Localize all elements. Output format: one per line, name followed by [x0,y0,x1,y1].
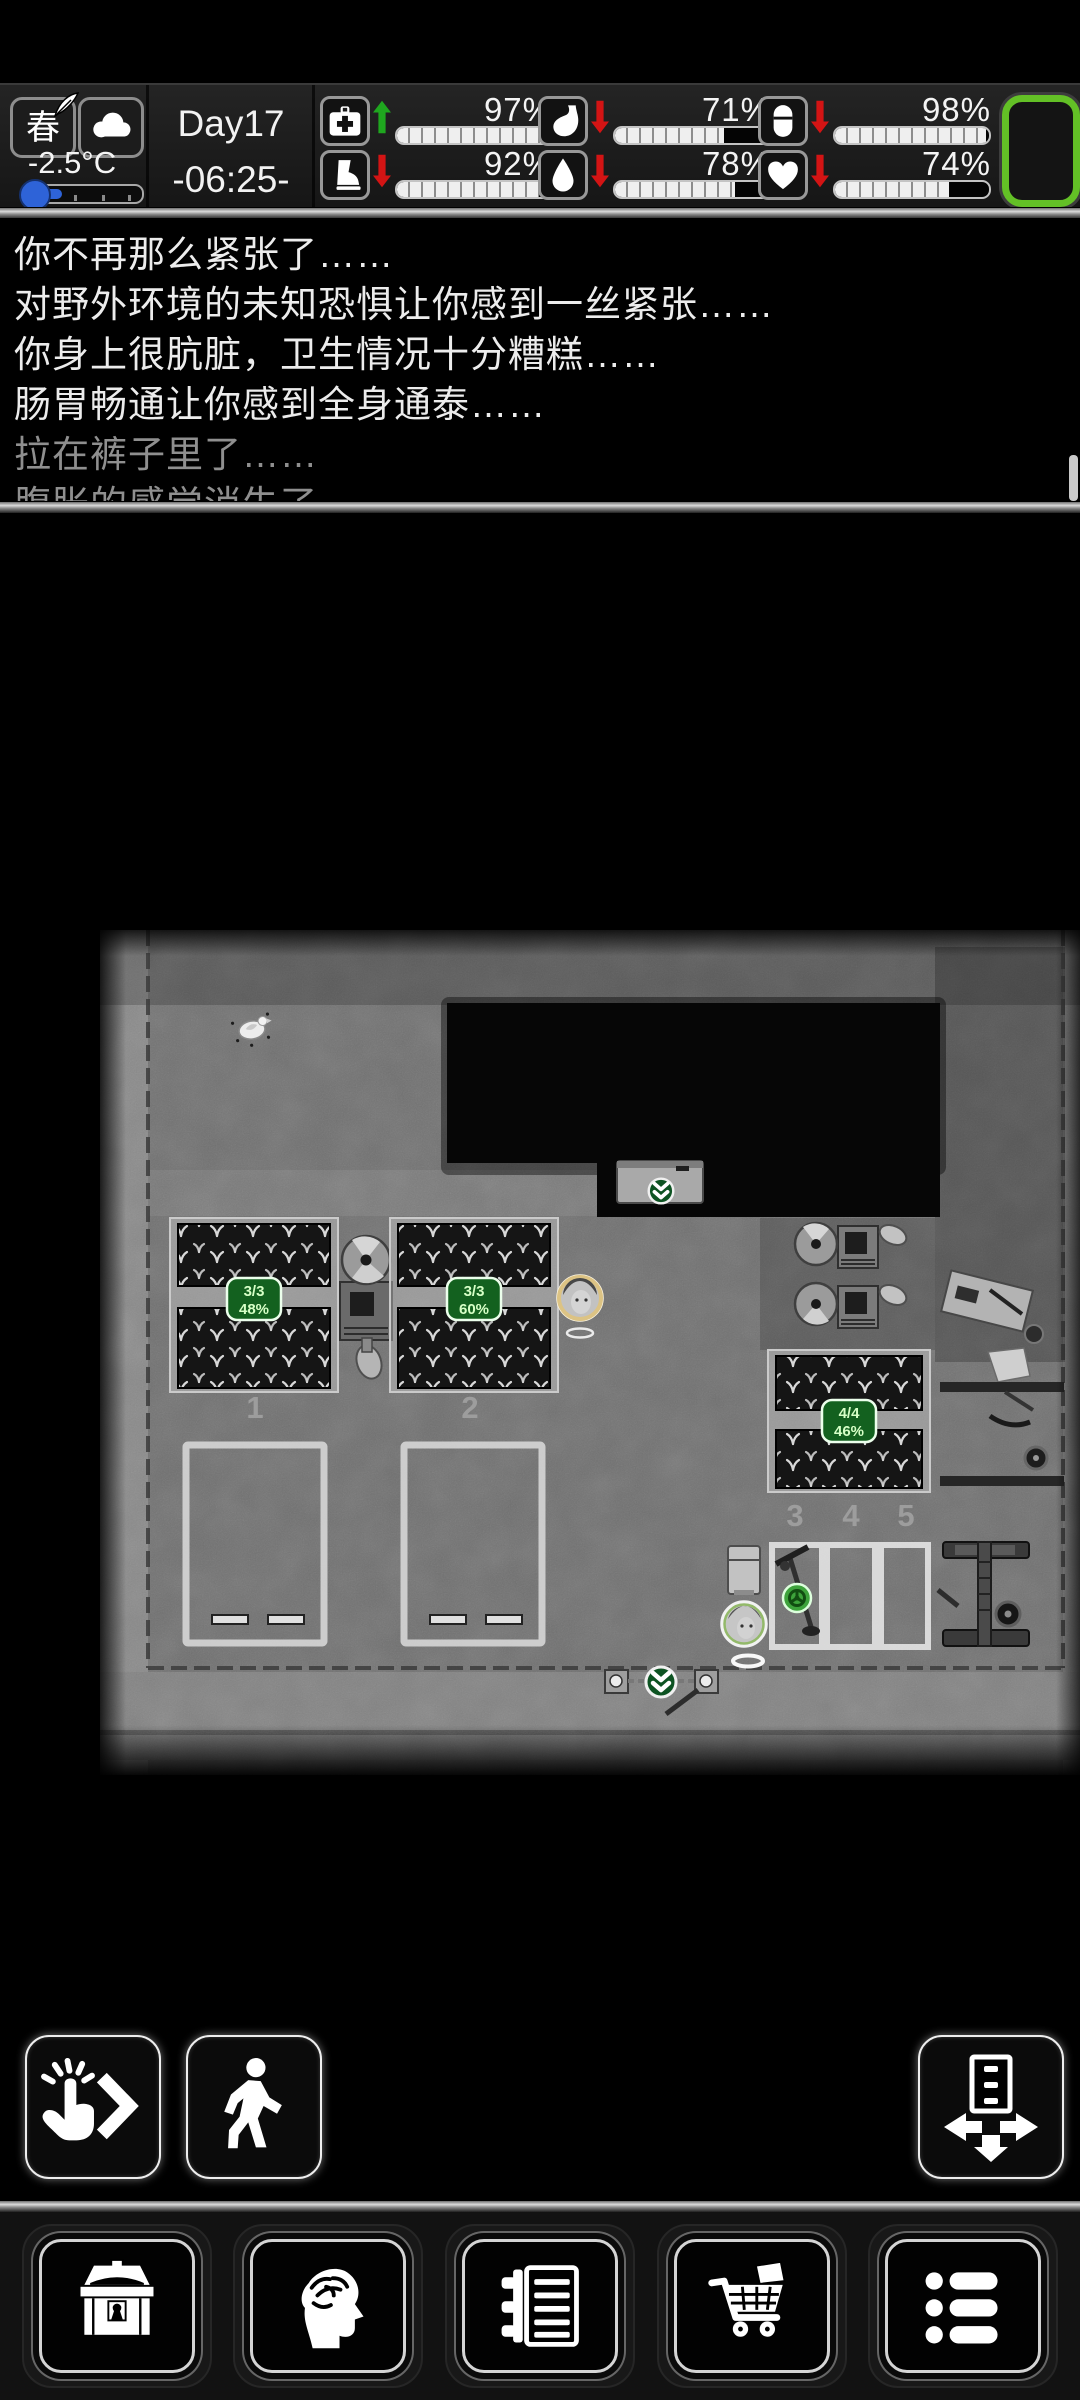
status-bar: 春 -2.5°C Day17 -06:25- [0,85,1080,207]
head-brain-icon [280,2258,376,2354]
mood-percent: 74% [833,150,991,178]
notebook-icon [492,2258,588,2354]
water-drop-icon [538,150,588,200]
thermometer-tick [102,195,105,201]
stamina-percent: 92% [395,150,553,178]
drawer-arrows-icon [936,2051,1046,2163]
tap-chevron-icon [39,2058,147,2156]
hydration-meter: 78% [613,150,771,199]
enter-building-badge[interactable] [649,1179,674,1204]
crop-plot-2[interactable]: 3/3 60% [390,1218,558,1392]
separator [146,85,149,207]
stat-stamina: 92% [320,150,553,200]
vignette [100,1725,1080,1775]
trend-up-icon [373,100,391,134]
time-label: -06:25- [150,159,312,201]
crop-plot-3[interactable]: 4/4 46% [768,1350,930,1492]
log-line: 你身上很肮脏，卫生情况十分糟糕…… [0,330,1080,380]
thermometer-tick [74,195,77,201]
trend-down-icon [591,154,609,188]
fullness-bar [613,126,771,145]
fullness-meter: 71% [613,96,771,145]
storage-deploy-button[interactable] [918,2035,1064,2179]
energy-bar [833,126,991,145]
trade-button[interactable] [657,2224,847,2388]
map-view[interactable]: 3/3 48% 3/3 60% [100,930,1080,1775]
day-label: Day17 [150,103,312,145]
heart-icon [758,150,808,200]
inventory-button[interactable] [22,2224,212,2388]
separator [312,85,315,207]
battery-indicator[interactable] [1002,95,1080,207]
vehicle-badge[interactable] [783,1584,811,1612]
stat-column-2: 71% 78% [538,85,754,207]
log-line: 对野外环境的未知恐惧让你感到一丝紧张…… [0,280,1080,330]
parking-label-5: 5 [897,1498,914,1533]
stamina-meter: 92% [395,150,553,199]
journal-button[interactable] [445,2224,635,2388]
energy-percent: 98% [833,96,991,124]
temperature-label: -2.5°C [6,145,138,181]
male-survivor-marker[interactable] [722,1602,766,1646]
health-meter: 97% [395,96,553,145]
plot-3-badge[interactable]: 4/4 46% [822,1400,876,1442]
stat-mood: 74% [758,150,991,200]
energy-meter: 98% [833,96,991,145]
stat-column-3: 98% 74% [758,85,974,207]
metal-divider [0,501,1080,514]
gate-badge[interactable] [646,1667,676,1697]
plot-1-count: 3/3 [244,1283,265,1300]
game-screen: 春 -2.5°C Day17 -06:25- [0,0,1080,2400]
crop-plot-1[interactable]: 3/3 48% [170,1218,338,1392]
hydration-percent: 78% [613,150,771,178]
plot-2-count: 3/3 [464,1283,485,1300]
fullness-percent: 71% [613,96,771,124]
bullet-list-icon [915,2258,1011,2354]
plot-2-growth: 60% [459,1301,489,1318]
medkit-icon [320,96,370,146]
mood-bar [833,180,991,199]
boot-icon [320,150,370,200]
plot-3-count: 4/4 [839,1405,861,1422]
hydration-bar [613,180,771,199]
female-survivor-marker[interactable] [557,1275,603,1321]
interact-button[interactable] [25,2035,161,2179]
parking-label-2: 2 [461,1390,478,1425]
trend-down-icon [373,154,391,188]
stat-health: 97% [320,96,553,146]
vignette [1056,930,1080,1775]
day-time-block: Day17 -06:25- [150,85,312,207]
trend-down-icon [591,100,609,134]
parking-label-4: 4 [842,1498,860,1533]
stat-column-1: 97% 92% [320,85,538,207]
message-log[interactable]: 你不再那么紧张了…… 对野外环境的未知恐惧让你感到一丝紧张…… 你身上很肮脏，卫… [0,218,1080,501]
plot-3-growth: 46% [834,1423,864,1440]
log-line: 你不再那么紧张了…… [0,230,1080,280]
stomach-icon [538,96,588,146]
stat-hydration: 78% [538,150,771,200]
bottom-toolbar [0,2212,1080,2400]
cloud-icon [88,109,134,146]
vignette [100,930,126,1775]
parking-label-3: 3 [786,1498,803,1533]
log-line: 腹胀的感觉消失了 [0,480,1080,501]
plot-1-badge[interactable]: 3/3 48% [227,1278,281,1320]
character-button[interactable] [233,2224,423,2388]
treasure-chest-icon [68,2258,166,2354]
trend-down-icon [811,154,829,188]
thermometer [22,184,144,204]
stamina-bar [395,180,553,199]
log-scrollbar-thumb[interactable] [1069,455,1078,501]
log-line: 肠胃畅通让你感到全身通泰…… [0,380,1080,430]
stat-fullness: 71% [538,96,771,146]
parking-label-1: 1 [246,1390,263,1425]
thermometer-tick [128,195,131,201]
mood-meter: 74% [833,150,991,199]
trend-down-icon [811,100,829,134]
plot-2-badge[interactable]: 3/3 60% [447,1278,501,1320]
plot-1-growth: 48% [239,1301,269,1318]
capsule-icon [758,96,808,146]
vignette [100,930,1080,956]
quill-icon [51,90,81,125]
container-box[interactable] [728,1546,760,1595]
health-percent: 97% [395,96,553,124]
shopping-cart-icon [703,2258,801,2354]
walking-person-icon [206,2055,302,2159]
menu-button[interactable] [868,2224,1058,2388]
log-line: 拉在裤子里了…… [0,430,1080,480]
move-button[interactable] [186,2035,322,2179]
health-bar [395,126,553,145]
stat-energy: 98% [758,96,991,146]
